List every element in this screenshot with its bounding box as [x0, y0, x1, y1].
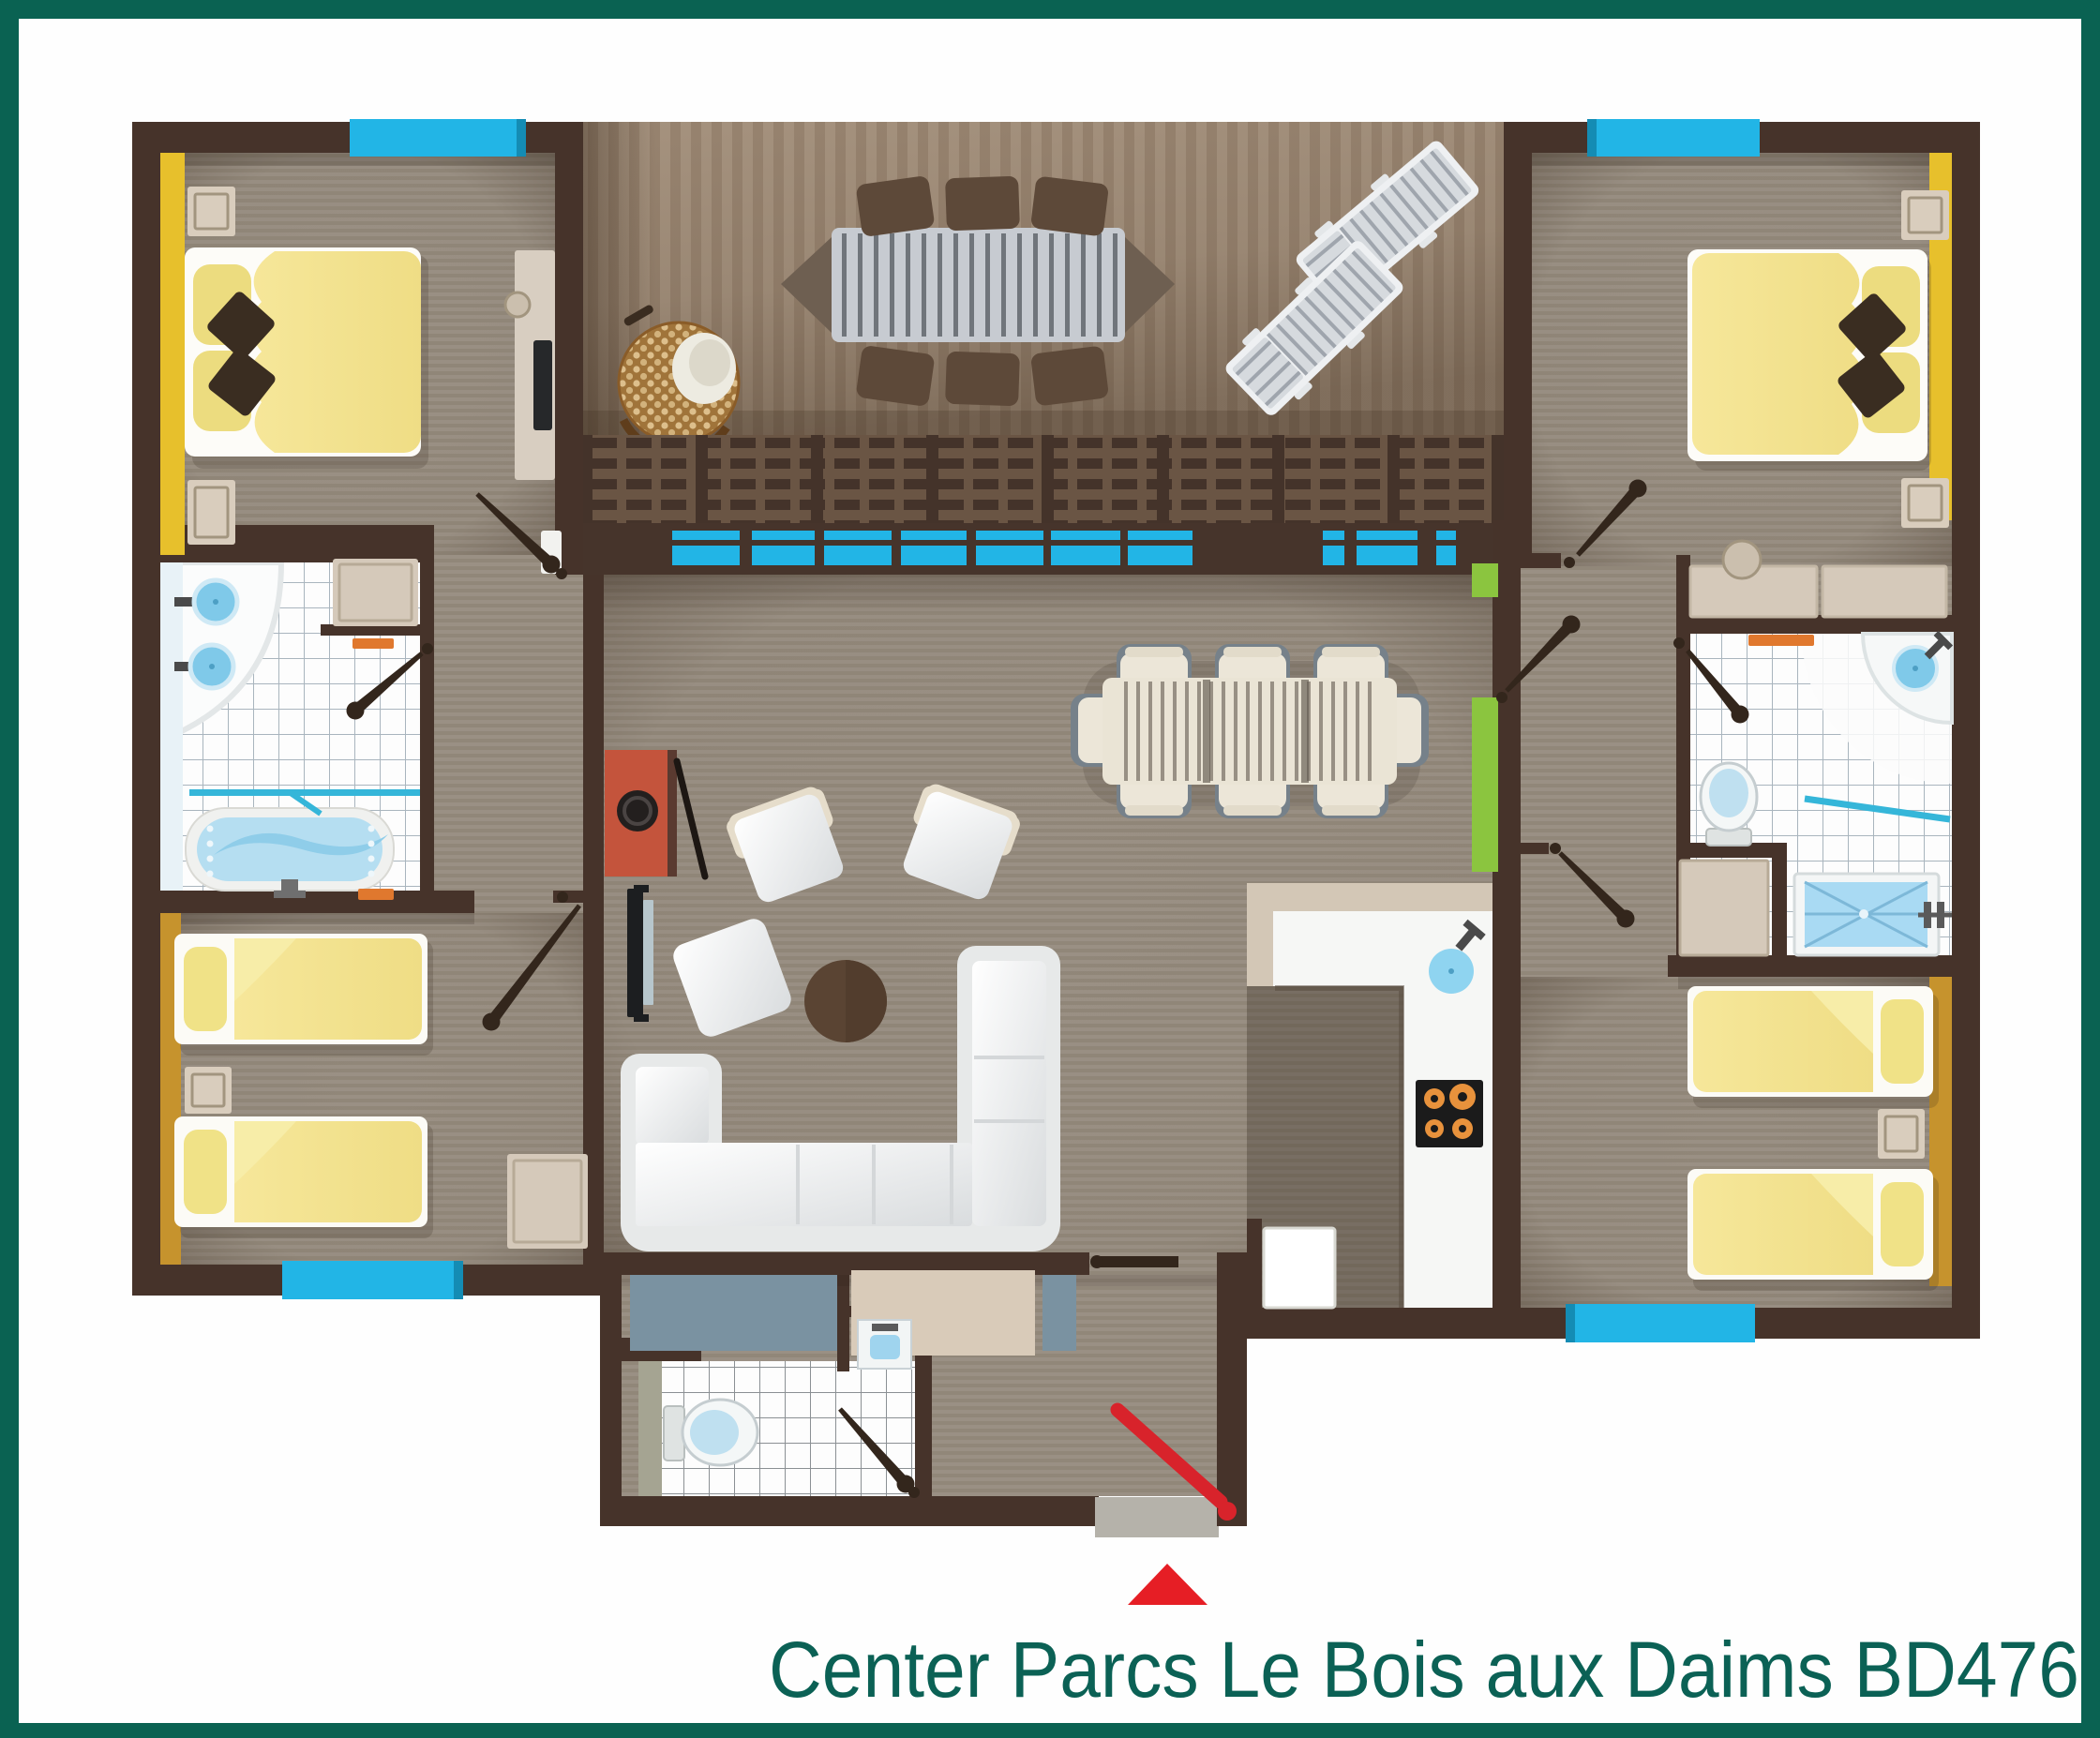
- svg-text:Center Parcs Le Bois aux Daims: Center Parcs Le Bois aux Daims BD476: [769, 1626, 2079, 1714]
